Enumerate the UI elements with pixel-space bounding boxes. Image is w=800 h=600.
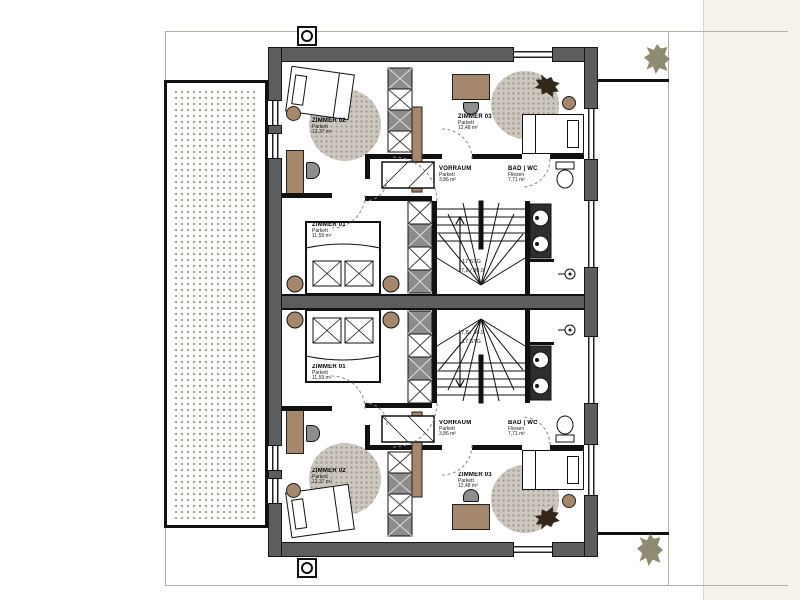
installation-shaft [388, 68, 412, 152]
paper-margin [703, 0, 800, 600]
window [268, 445, 282, 471]
apartment-unit-upper: ZIMMER 02 Parkett 12,37 m² ZIMMER 03 Par… [282, 62, 584, 294]
tree-icon [637, 534, 663, 566]
room-label-bad-wc: BAD | WC Fliesen 7,71 m² [508, 420, 538, 438]
garden-wall-top [598, 79, 669, 82]
room-label-bad-wc: BAD | WC Fliesen 7,71 m² [508, 166, 538, 184]
floor-plan-page: { "plan": { "rooms": { "zimmer01": { "na… [0, 0, 800, 600]
window [268, 478, 282, 504]
vorraum-wardrobe [382, 162, 434, 188]
window [584, 444, 598, 496]
nightstand [287, 312, 303, 328]
terrace [164, 80, 268, 528]
room-area: 12,37 m² [312, 480, 346, 486]
room-area: 11,59 m² [312, 376, 346, 382]
unit-linework [282, 62, 584, 294]
room-label-zimmer03: ZIMMER 03 Parkett 12,48 m² [458, 472, 492, 490]
room-label-zimmer02: ZIMMER 02 Parkett 12,37 m² [312, 118, 346, 136]
site-boundary-line-top [165, 31, 788, 32]
installation-shaft [388, 452, 412, 536]
tree-icon [644, 44, 670, 74]
room-label-zimmer01: ZIMMER 01 Parkett 11,59 m² [312, 222, 346, 240]
unit-linework [282, 310, 584, 542]
garden-wall-bottom [598, 532, 669, 535]
window [584, 200, 598, 268]
apartment-unit-lower: ZIMMER 02 Parkett 12,37 m² ZIMMER 03 Par… [282, 310, 584, 542]
wardrobe-shaft [408, 201, 432, 293]
nightstand [383, 312, 399, 328]
stair-count-label: 17 STG [462, 339, 481, 345]
window [513, 542, 553, 557]
terrace-hatch-pattern [173, 89, 259, 519]
room-area: 3,86 m² [439, 432, 471, 438]
stair-step-label: 17,8 / 30,0 [458, 330, 484, 336]
window [513, 47, 553, 62]
room-area: 7,71 m² [508, 178, 538, 184]
room-area: 11,59 m² [312, 234, 346, 240]
nightstand [287, 276, 303, 292]
toilet [556, 162, 574, 188]
site-boundary-line-bottom [165, 585, 788, 586]
room-label-zimmer02: ZIMMER 02 Parkett 12,37 m² [312, 468, 346, 486]
survey-marker-icon [297, 558, 317, 578]
wardrobe-shaft [408, 311, 432, 403]
party-wall [282, 294, 584, 310]
room-area: 12,48 m² [458, 484, 492, 490]
survey-marker-icon [297, 26, 317, 46]
stair-count-label: 17 STG [462, 259, 481, 265]
window [268, 133, 282, 159]
room-area: 7,71 m² [508, 432, 538, 438]
room-area: 12,37 m² [312, 130, 346, 136]
garden-boundary-line-right [668, 31, 669, 585]
room-label-zimmer01: ZIMMER 01 Parkett 11,59 m² [312, 364, 346, 382]
room-area: 3,86 m² [439, 178, 471, 184]
nightstand [383, 276, 399, 292]
shower-symbol [558, 269, 575, 279]
stair-step-label: 17,8 / 30,0 [458, 268, 484, 274]
shower-symbol [558, 325, 575, 335]
room-label-vorraum: VORRAUM Parkett 3,86 m² [439, 420, 471, 438]
vorraum-wardrobe [382, 416, 434, 442]
room-area: 12,48 m² [458, 126, 492, 132]
window [584, 108, 598, 160]
room-label-zimmer03: ZIMMER 03 Parkett 12,48 m² [458, 114, 492, 132]
window [584, 336, 598, 404]
window [268, 100, 282, 126]
toilet [556, 416, 574, 442]
double-washbasin [530, 346, 551, 400]
double-washbasin [530, 204, 551, 258]
room-label-vorraum: VORRAUM Parkett 3,86 m² [439, 166, 471, 184]
